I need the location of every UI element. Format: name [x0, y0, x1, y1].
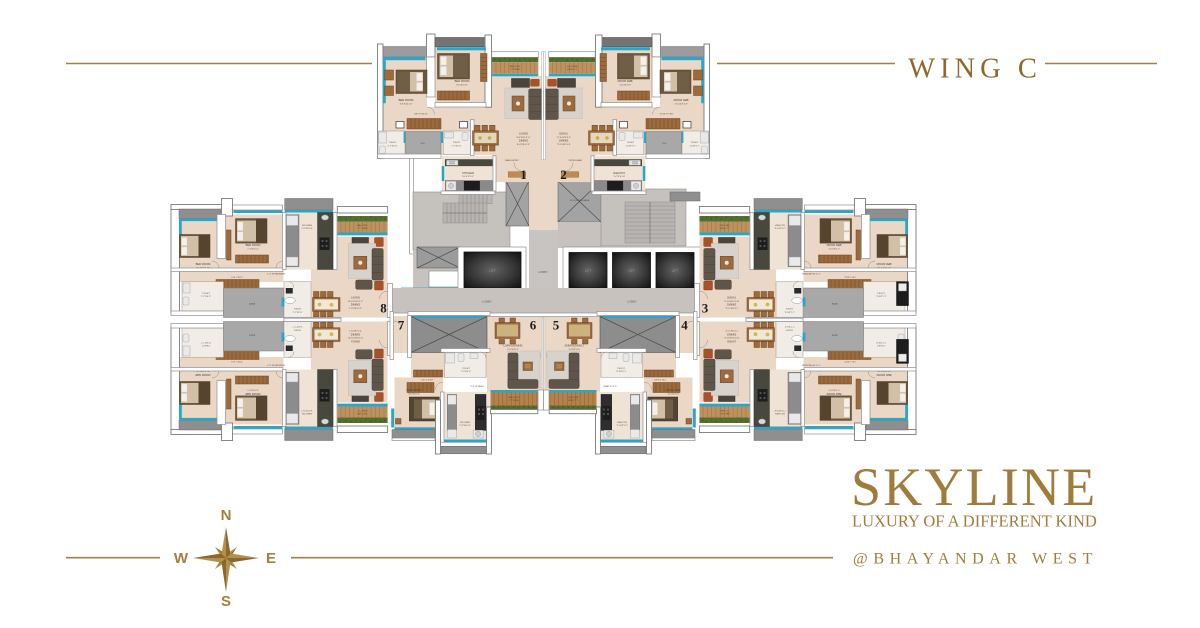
svg-text:@BHAYANDAR WEST: @BHAYANDAR WEST	[853, 551, 1098, 568]
svg-text:N: N	[221, 507, 232, 524]
svg-text:LOBBY: LOBBY	[482, 300, 492, 304]
svg-text:3: 3	[702, 301, 709, 316]
svg-text:W: W	[174, 550, 189, 567]
svg-text:WING C: WING C	[908, 54, 1042, 85]
svg-text:1: 1	[520, 167, 527, 182]
svg-text:5: 5	[553, 318, 560, 333]
svg-text:SKYLINE: SKYLINE	[851, 457, 1097, 517]
svg-text:8: 8	[380, 301, 387, 316]
svg-text:LIFT: LIFT	[489, 269, 496, 273]
svg-text:7: 7	[398, 318, 405, 333]
svg-text:LIFT: LIFT	[672, 269, 679, 273]
svg-text:LUXURY OF A DIFFERENT KIND: LUXURY OF A DIFFERENT KIND	[852, 512, 1097, 531]
svg-text:LOBBY: LOBBY	[538, 270, 548, 274]
svg-text:4: 4	[681, 318, 688, 333]
svg-text:LIFT: LIFT	[585, 269, 592, 273]
svg-text:15 SQM REF AREA: 15 SQM REF AREA	[570, 199, 590, 202]
svg-text:LIFT: LIFT	[628, 269, 635, 273]
svg-text:S: S	[221, 593, 231, 610]
svg-text:6: 6	[530, 318, 537, 333]
svg-text:2: 2	[560, 167, 567, 182]
svg-text:LOBBY: LOBBY	[627, 300, 637, 304]
svg-text:E: E	[266, 550, 276, 567]
